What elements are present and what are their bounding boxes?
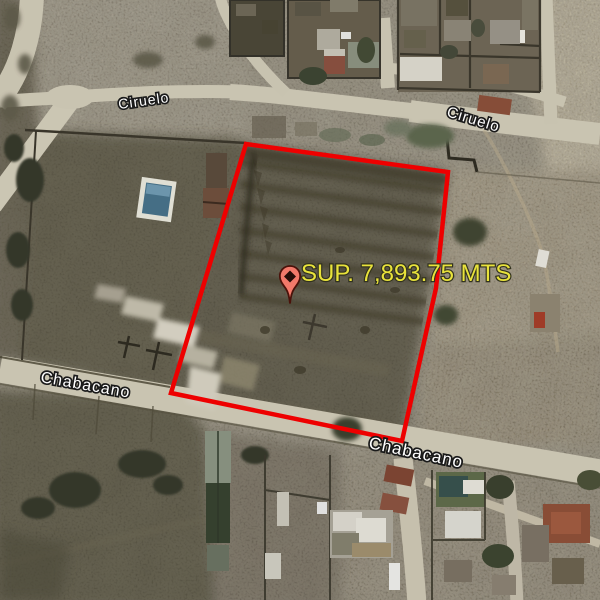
svg-text:SUP. 7,893.75 MTS: SUP. 7,893.75 MTS: [301, 260, 511, 287]
